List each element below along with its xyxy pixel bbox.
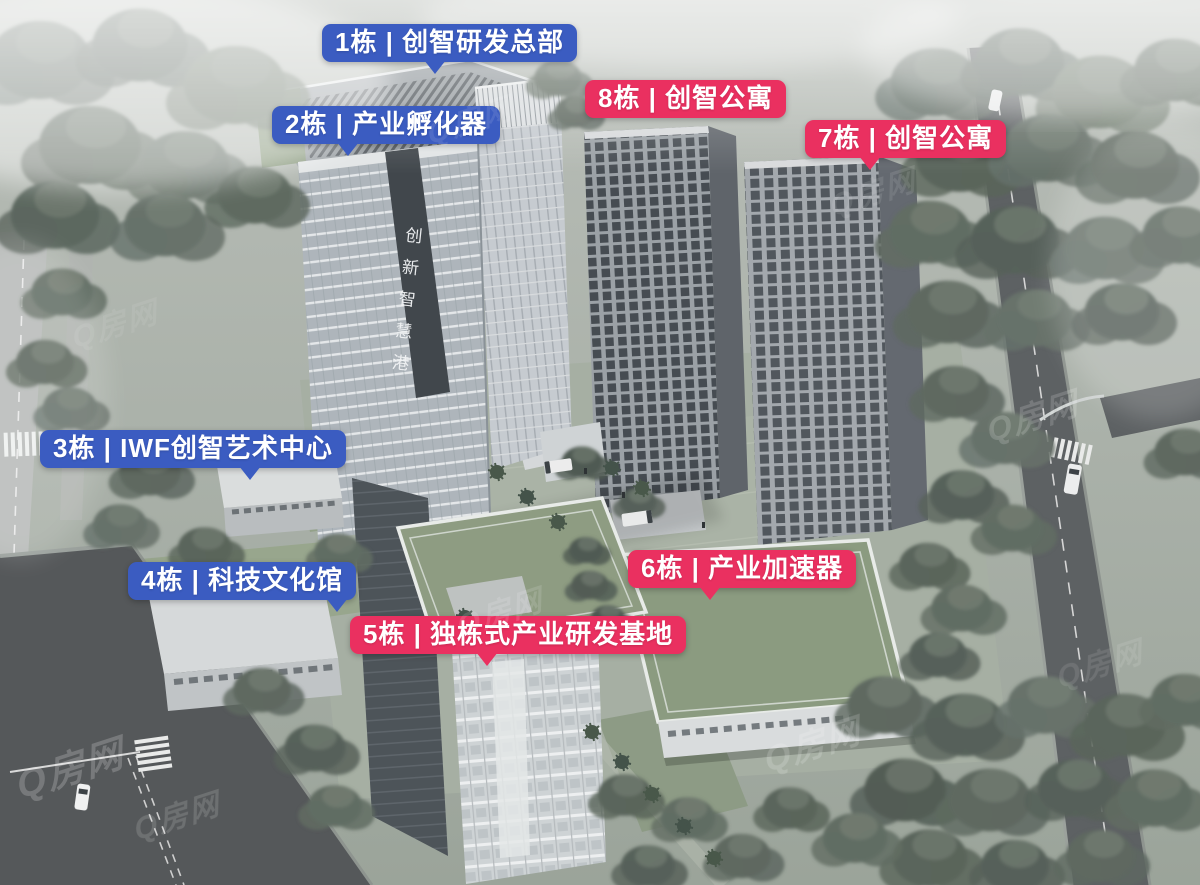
label-building-3: 3栋 | IWF创智艺术中心 — [40, 430, 346, 468]
label-tail — [859, 156, 881, 170]
label-tail — [476, 652, 498, 666]
label-building-1-text: 1栋 | 创智研发总部 — [335, 27, 564, 57]
label-building-3-text: 3栋 | IWF创智艺术中心 — [53, 433, 333, 463]
label-building-8: 8栋 | 创智公寓 — [585, 80, 786, 118]
label-building-4-text: 4栋 | 科技文化馆 — [141, 565, 343, 595]
label-building-6-text: 6栋 | 产业加速器 — [641, 553, 843, 583]
label-building-6: 6栋 | 产业加速器 — [628, 550, 856, 588]
label-tail — [699, 586, 721, 600]
label-building-8-text: 8栋 | 创智公寓 — [598, 83, 773, 113]
label-building-7: 7栋 | 创智公寓 — [805, 120, 1006, 158]
label-building-7-text: 7栋 | 创智公寓 — [818, 123, 993, 153]
aerial-render-image: 创新智慧港 1栋 | 创智研发总部 2栋 | 产业孵化器 8栋 | 创智公寓 7… — [0, 0, 1200, 885]
label-building-4: 4栋 | 科技文化馆 — [128, 562, 356, 600]
label-building-2: 2栋 | 产业孵化器 — [272, 106, 500, 144]
label-tail — [239, 466, 261, 480]
label-building-5: 5栋 | 独栋式产业研发基地 — [350, 616, 686, 654]
label-building-1: 1栋 | 创智研发总部 — [322, 24, 577, 62]
label-tail — [424, 60, 446, 74]
label-building-2-text: 2栋 | 产业孵化器 — [285, 109, 487, 139]
label-tail — [326, 598, 348, 612]
label-tail — [337, 142, 359, 156]
label-building-5-text: 5栋 | 独栋式产业研发基地 — [363, 619, 673, 649]
